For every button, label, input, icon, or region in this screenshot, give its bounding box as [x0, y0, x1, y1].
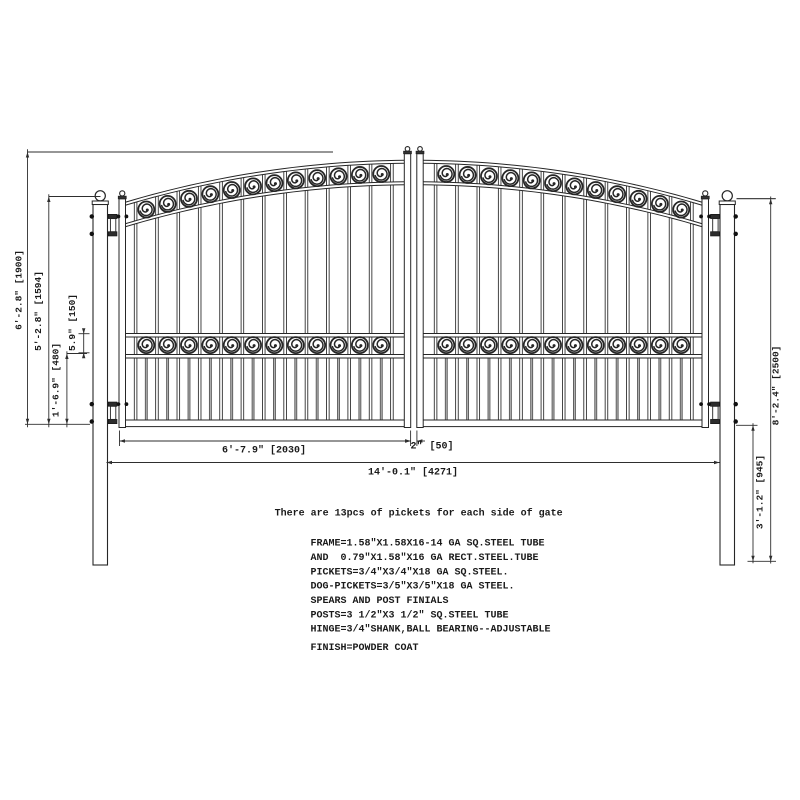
svg-text:6'-7.9" [2030]: 6'-7.9" [2030] — [222, 445, 306, 457]
svg-text:3'-1.2" [945]: 3'-1.2" [945] — [754, 455, 765, 529]
svg-text:14'-0.1" [4271]: 14'-0.1" [4271] — [368, 467, 458, 479]
svg-text:POSTS=3 1/2"X3 1/2" SQ.STEEL T: POSTS=3 1/2"X3 1/2" SQ.STEEL TUBE — [311, 609, 509, 621]
svg-text:HINGE=3/4"SHANK,BALL BEARING--: HINGE=3/4"SHANK,BALL BEARING--ADJUSTABLE — [311, 624, 551, 636]
svg-text:6'-2.8" [1900]: 6'-2.8" [1900] — [13, 250, 24, 330]
svg-text:FRAME=1.58"X1.58X16-14 GA SQ.S: FRAME=1.58"X1.58X16-14 GA SQ.STEEL TUBE — [311, 538, 545, 550]
svg-text:DOG-PICKETS=3/5"X3/5"X18 GA ST: DOG-PICKETS=3/5"X3/5"X18 GA STEEL. — [311, 581, 515, 593]
svg-text:PICKETS=3/4"X3/4"X18 GA SQ.STE: PICKETS=3/4"X3/4"X18 GA SQ.STEEL. — [311, 566, 509, 578]
svg-text:1'-6.9" [480]: 1'-6.9" [480] — [51, 343, 62, 417]
svg-text:5'-2.8" [1594]: 5'-2.8" [1594] — [33, 271, 44, 351]
svg-text:FINISH=POWDER COAT: FINISH=POWDER COAT — [311, 643, 419, 654]
svg-text:SPEARS AND POST FINIALS: SPEARS AND POST FINIALS — [311, 596, 449, 607]
svg-text:There are 13pcs of pickets for: There are 13pcs of pickets for each side… — [275, 508, 563, 520]
svg-text:5.9" [150]: 5.9" [150] — [67, 294, 78, 351]
svg-text:AND 0.79"X1.58"X16 GA RECT.ST: AND 0.79"X1.58"X16 GA RECT.STEEL.TUBE — [311, 552, 539, 564]
svg-text:8'-2.4" [2500]: 8'-2.4" [2500] — [770, 346, 781, 426]
svg-text:[50]: [50] — [430, 441, 454, 453]
svg-text:2": 2" — [411, 441, 423, 453]
